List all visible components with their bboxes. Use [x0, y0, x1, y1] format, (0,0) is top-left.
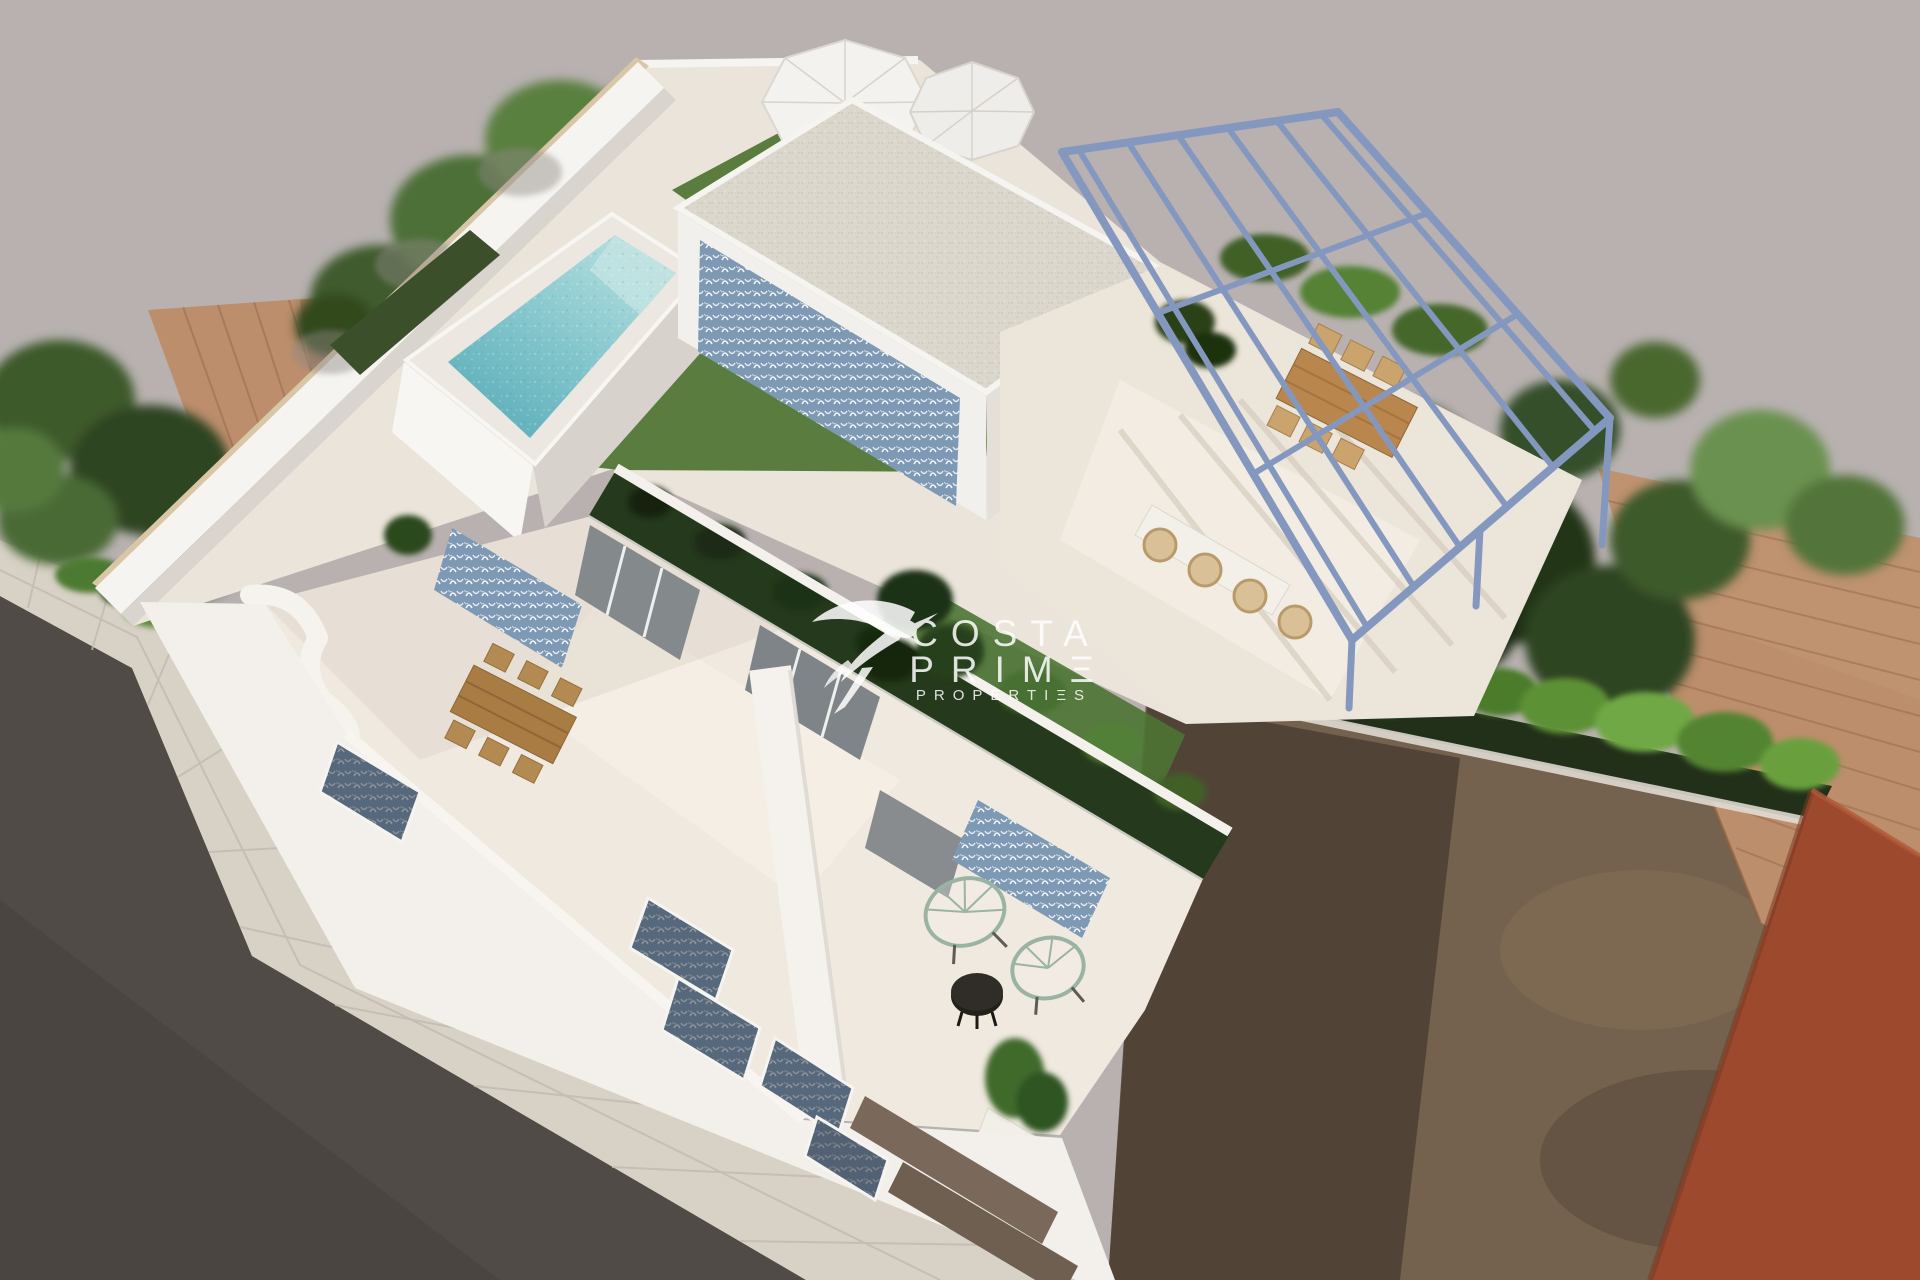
- round-coffee-table: [951, 973, 1003, 1029]
- watermark-line2: PRIMΞ: [909, 649, 1111, 690]
- watermark-line1: COSTA: [911, 613, 1101, 654]
- watermark-line3: PROPERTIΞS: [916, 687, 1092, 704]
- aerial-villa-render: COSTA PRIMΞ PROPERTIΞS: [0, 0, 1920, 1280]
